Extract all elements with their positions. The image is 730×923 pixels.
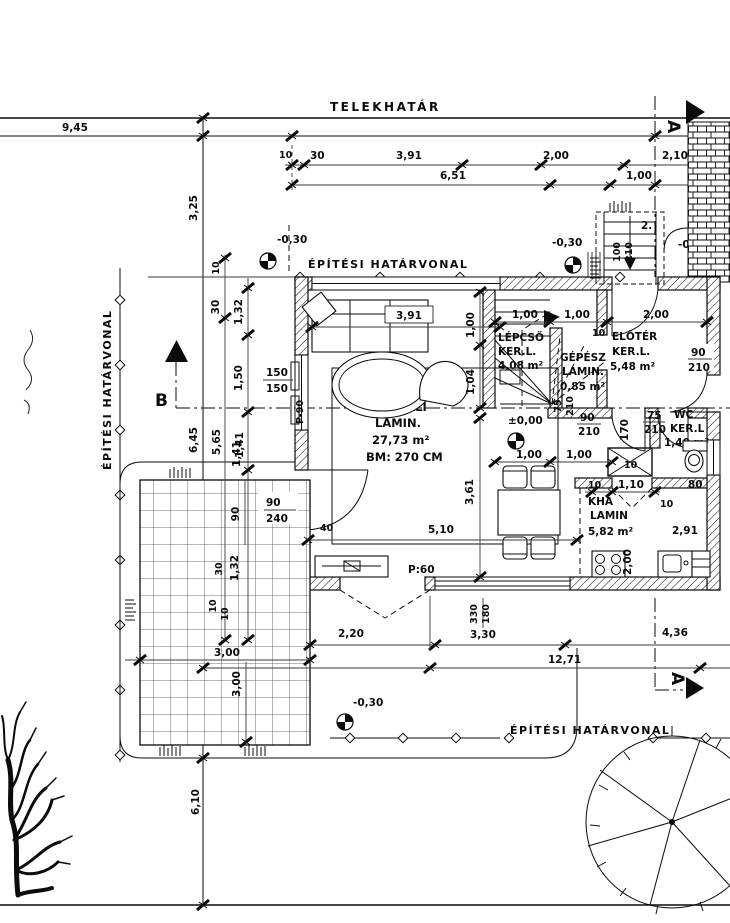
- dim-40: 40: [320, 523, 334, 534]
- room-lepcso-floor: KER.L.: [498, 346, 536, 358]
- dim-10-terr: 10: [208, 599, 219, 613]
- section-a-bottom-letter: A: [667, 672, 687, 686]
- dim-3-00-v: 3,00: [231, 671, 243, 697]
- section-a-top-letter: A: [663, 120, 683, 134]
- room-gepesz-floor: LAMIN.: [562, 366, 604, 378]
- dim-4-36: 4,36: [662, 627, 688, 639]
- room-nappali-height: BM: 270 CM: [366, 450, 443, 464]
- dim-1-32-left: 1,32: [233, 299, 245, 325]
- coffee-table: [332, 352, 432, 418]
- dim-3-91-top: 3,91: [396, 150, 422, 162]
- room-kha-name: KHA: [588, 496, 614, 508]
- dim-3-25: 3,25: [188, 195, 200, 221]
- dim-2-00-kitchen: 2,00: [622, 549, 634, 575]
- room-gepesz-name: GÉPÉSZ: [560, 351, 606, 364]
- dim-3-30: 3,30: [470, 629, 496, 641]
- dim-1-00-stair1: 1,00: [512, 309, 538, 321]
- door-210a: 210: [688, 362, 710, 374]
- dim-10-left: 10: [211, 261, 222, 275]
- door-210b: 210: [578, 426, 600, 438]
- door-90b: 90: [580, 412, 595, 424]
- floor-plan-sheet: TELEKHATÁR 9,45 3,25 6,10 10 30 3,91 2,0…: [0, 0, 730, 923]
- room-eloter-area: 5,48 m²: [610, 361, 656, 373]
- dim-10-k2: 10: [660, 499, 674, 510]
- dim-5-65: 5,65: [211, 429, 223, 455]
- dim-90-terr-rot: 90: [230, 507, 242, 522]
- level-minus030-right: -0,30: [552, 237, 582, 249]
- dim-330-v: 330: [469, 604, 480, 624]
- level-minus030-bottom: -0,30: [353, 697, 383, 709]
- dim-10-eloter: 10: [592, 328, 606, 339]
- dim-2-00-top: 2,00: [543, 150, 569, 162]
- door-75wc: 75: [647, 410, 662, 422]
- room-wc-floor: KER.L: [670, 423, 705, 435]
- dim-2-20: 2,20: [338, 628, 364, 640]
- room-kha-area: 5,82 m²: [588, 526, 634, 538]
- room-wc-name: WC: [674, 409, 694, 421]
- room-gepesz-area: 0,85 m²: [560, 381, 606, 393]
- door-90a: 90: [691, 347, 706, 359]
- dim-3-00-h: 3,00: [214, 647, 240, 659]
- room-lepcso-name: LÉPCSŐ: [498, 330, 544, 344]
- dim-9-45: 9,45: [62, 122, 88, 134]
- floor-plan-drawing: TELEKHATÁR 9,45 3,25 6,10 10 30 3,91 2,0…: [0, 0, 730, 923]
- parapet-60-label: P:60: [408, 564, 435, 576]
- dim-170: 170: [619, 419, 631, 441]
- dim-150a: 150: [266, 367, 288, 379]
- dim-5-10: 5,10: [428, 524, 454, 536]
- window-living-south: [435, 577, 570, 590]
- brick-paving: [688, 122, 730, 282]
- dining-table: [498, 490, 560, 535]
- entry-door-100: 100: [612, 242, 623, 262]
- building-line-left-label: ÉPÍTÉSI HATÁRVONAL: [101, 310, 114, 470]
- dim-150b: 150: [266, 383, 288, 395]
- room-nappali-area: 27,73 m²: [372, 433, 429, 447]
- dim-1-00-right: 1,00: [465, 312, 477, 338]
- room-lepcso-area: 4,08 m²: [498, 360, 544, 372]
- level-pm000-hall: ±0,00: [508, 415, 543, 427]
- dim-10-bottom: 10: [220, 607, 231, 621]
- dim-1-32-terr: 1,32: [229, 555, 241, 581]
- dim-2-10-top: 2,10: [662, 150, 688, 162]
- dim-1-50-left: 1,50: [233, 365, 245, 391]
- door-210r: 210: [565, 396, 576, 416]
- dim-6-51: 6,51: [440, 170, 466, 182]
- entry-step-note: 2.: [641, 220, 652, 232]
- dim-2-91: 2,91: [672, 525, 698, 537]
- dim-1-41-left: 1,41: [234, 432, 246, 458]
- dim-10-top: 10: [279, 150, 293, 161]
- room-eloter-name: ELŐTÉR: [612, 329, 657, 343]
- dim-10-k1: 10: [588, 480, 602, 491]
- dim-3-61: 3,61: [464, 479, 476, 505]
- dim-2-00-eloter: 2,00: [643, 309, 669, 321]
- dim-3-91-sofa: 3,91: [396, 310, 422, 322]
- telekhatar-label: TELEKHATÁR: [330, 99, 441, 114]
- room-eloter-floor: KER.L.: [612, 346, 650, 358]
- dim-10-shaft: 10: [624, 460, 638, 471]
- dim-180-v: 180: [481, 604, 492, 624]
- dim-1-00-hall2: 1,00: [566, 449, 592, 461]
- dim-1-00-hall1: 1,00: [516, 449, 542, 461]
- parapet-90-label: P-90: [295, 400, 306, 424]
- entry-door-210: 210: [624, 242, 635, 262]
- dim-1-00-top: 1,00: [626, 170, 652, 182]
- dim-12-71: 12,71: [548, 654, 581, 666]
- door-210wc: 210: [644, 424, 666, 436]
- dim-30-left: 30: [210, 300, 222, 315]
- dim-30-top: 30: [310, 150, 325, 162]
- kitchen-sink: [658, 551, 710, 577]
- dim-80: 80: [688, 479, 703, 491]
- dim-1-00-stair2: 1,00: [564, 309, 590, 321]
- level-minus030-left: -0,30: [277, 234, 307, 246]
- dim-1-10: 1,10: [618, 479, 644, 491]
- section-b-letter: B: [155, 391, 168, 411]
- dim-240-terr: 240: [266, 513, 288, 525]
- tv-bench: [315, 556, 388, 577]
- room-kha-floor: LAMIN: [590, 510, 628, 522]
- dim-6-45: 6,45: [188, 427, 200, 453]
- door-75r: 75: [553, 399, 564, 412]
- dim-30-terr: 30: [214, 562, 225, 576]
- stove: [592, 551, 625, 577]
- dim-90-terr: 90: [266, 497, 281, 509]
- building-line-bottom-label: ÉPÍTÉSI HATÁRVONAL: [510, 724, 670, 737]
- dim-1-04: 1,04: [465, 369, 477, 395]
- dim-6-10: 6,10: [190, 789, 202, 815]
- window-living-north: [312, 277, 500, 290]
- building-line-top-label: ÉPÍTÉSI HATÁRVONAL: [308, 258, 468, 271]
